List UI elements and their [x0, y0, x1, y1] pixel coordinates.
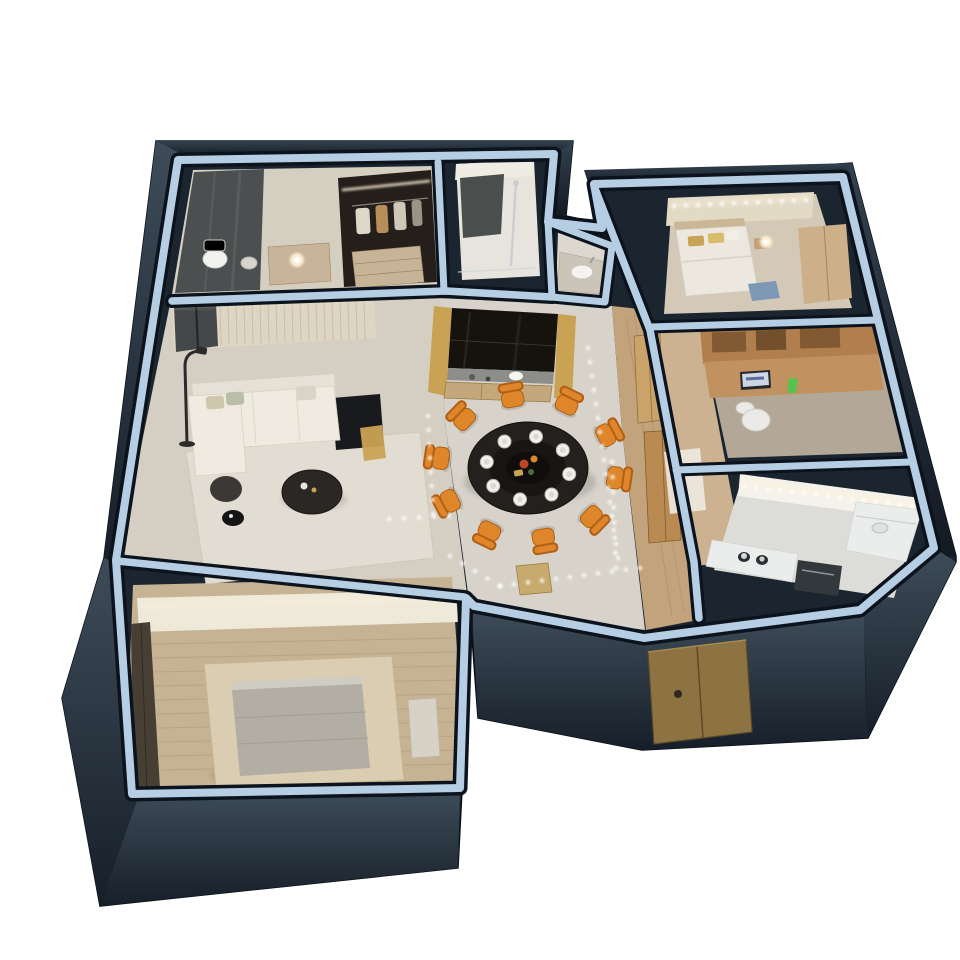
led-dot [672, 204, 676, 208]
office-chair [742, 409, 770, 431]
kitchen-appliance [794, 560, 842, 596]
led-dot [612, 521, 616, 525]
led-dot [606, 486, 610, 490]
toilet [203, 250, 227, 268]
led-dot [612, 528, 616, 532]
entry-door-handle [674, 690, 682, 698]
led-dot [596, 571, 600, 575]
nightstand-lamp [764, 240, 769, 245]
horse-figurine [509, 372, 523, 381]
stool [241, 257, 257, 269]
entry-console-table [516, 563, 552, 595]
bedside-bench [408, 698, 440, 758]
led-dot [862, 498, 866, 502]
led-dot [732, 201, 736, 205]
plate-center [533, 434, 539, 440]
gold-pillow [688, 235, 705, 246]
bed-mattress [232, 684, 370, 776]
led-dot [426, 414, 430, 418]
led-dot [616, 556, 620, 560]
pot [759, 556, 764, 561]
apartment-3d-floorplan [0, 0, 960, 960]
plate-center [549, 492, 555, 498]
led-dot [790, 490, 794, 494]
led-dot [708, 202, 712, 206]
led-dot [768, 200, 772, 204]
floorplan-render-stage [0, 0, 960, 960]
led-dot [427, 442, 431, 446]
led-dot [814, 493, 818, 497]
plate-center [566, 471, 572, 477]
led-dot [592, 388, 596, 392]
pot [741, 553, 747, 559]
led-dot [473, 569, 477, 573]
led-dot [430, 484, 434, 488]
plate-center [502, 439, 508, 445]
sofa-pillow [296, 385, 317, 400]
led-dot [638, 566, 642, 570]
led-dot [448, 554, 452, 558]
laptop-screen-content [746, 378, 764, 379]
centerpiece-red [520, 460, 529, 469]
led-dot [498, 584, 502, 588]
led-dot [432, 515, 436, 519]
entry-door-group [648, 640, 752, 744]
hanging-shirt [411, 200, 422, 226]
led-dot [756, 200, 760, 204]
led-dot [588, 360, 592, 364]
led-dot [428, 456, 432, 460]
led-dot [624, 568, 628, 572]
led-dot [598, 430, 602, 434]
floor-lamp-base [179, 441, 195, 447]
led-dot [613, 551, 617, 555]
table-decor [301, 483, 308, 490]
foot-bench [748, 281, 780, 301]
led-dot [586, 346, 590, 350]
sofa-pillow [226, 391, 245, 405]
led-dot [612, 505, 616, 509]
led-dot [554, 577, 558, 581]
led-dot [611, 490, 615, 494]
led-dot [610, 460, 614, 464]
hanging-shirt [375, 205, 388, 234]
led-dot [608, 500, 612, 504]
led-dot [696, 203, 700, 207]
centerpiece-green [528, 469, 534, 475]
shelf-cubby [712, 332, 747, 353]
led-dot [594, 402, 598, 406]
led-dot [684, 203, 688, 207]
shower-dark-panel [460, 174, 504, 238]
lazy-susan [506, 452, 550, 484]
vanity-lamp [294, 257, 300, 263]
hanging-shirt [393, 202, 406, 231]
counter-decor [486, 377, 491, 382]
led-dot [910, 504, 914, 508]
hanging-shirt [355, 208, 370, 235]
gold-pillow [708, 232, 725, 243]
shower-head [513, 180, 519, 186]
led-dot [596, 416, 600, 420]
led-dot [874, 500, 878, 504]
led-dot [387, 517, 391, 521]
led-dot [826, 494, 830, 498]
table-decor-gold [312, 488, 317, 493]
led-dot [447, 514, 451, 518]
plate-center [484, 459, 490, 465]
led-dot [417, 515, 421, 519]
led-dot [766, 487, 770, 491]
led-dot [430, 498, 434, 502]
led-dot [614, 566, 618, 570]
led-dot [838, 495, 842, 499]
led-dot [613, 536, 617, 540]
led-dot [610, 514, 614, 518]
led-dot [427, 428, 431, 432]
toilet-tank [204, 240, 225, 251]
led-dot [429, 470, 433, 474]
led-dot [744, 201, 748, 205]
led-dot [754, 485, 758, 489]
dining-chair [422, 443, 453, 473]
kitchen-sink [872, 523, 888, 533]
side-table-cup [229, 514, 233, 518]
led-dot [850, 497, 854, 501]
led-dot [886, 501, 890, 505]
led-dot [568, 575, 572, 579]
basin [571, 265, 593, 279]
led-dot [742, 484, 746, 488]
led-dot [590, 374, 594, 378]
led-dot [602, 458, 606, 462]
led-dot [512, 582, 516, 586]
plate-center [490, 483, 496, 489]
white-pillow [726, 231, 740, 241]
led-dot [780, 199, 784, 203]
led-dot [792, 198, 796, 202]
led-dot [460, 561, 464, 565]
facade-bedroom-south [100, 790, 460, 906]
led-dot [402, 516, 406, 520]
led-dot [804, 198, 808, 202]
side-table [222, 510, 244, 526]
ottoman [210, 476, 242, 502]
shelf-cubby [756, 330, 787, 351]
led-dot [582, 573, 586, 577]
counter-decor [469, 374, 475, 380]
plate-center [517, 496, 523, 502]
led-dot [802, 491, 806, 495]
led-dot [611, 475, 615, 479]
shelf-cubby [800, 327, 841, 348]
sofa-pillow [206, 395, 225, 409]
led-dot [540, 579, 544, 583]
led-dot [526, 580, 530, 584]
led-dot [600, 444, 604, 448]
led-dot [485, 576, 489, 580]
led-dot [610, 570, 614, 574]
dresser-drawers [352, 246, 424, 288]
led-dot [898, 503, 902, 507]
led-dot [778, 488, 782, 492]
coffee-table [282, 470, 342, 514]
centerpiece-orange [531, 456, 538, 463]
led-dot [720, 202, 724, 206]
gold-side-table [360, 425, 386, 461]
led-dot [614, 542, 618, 546]
plate-center [560, 447, 566, 453]
led-dot [604, 472, 608, 476]
